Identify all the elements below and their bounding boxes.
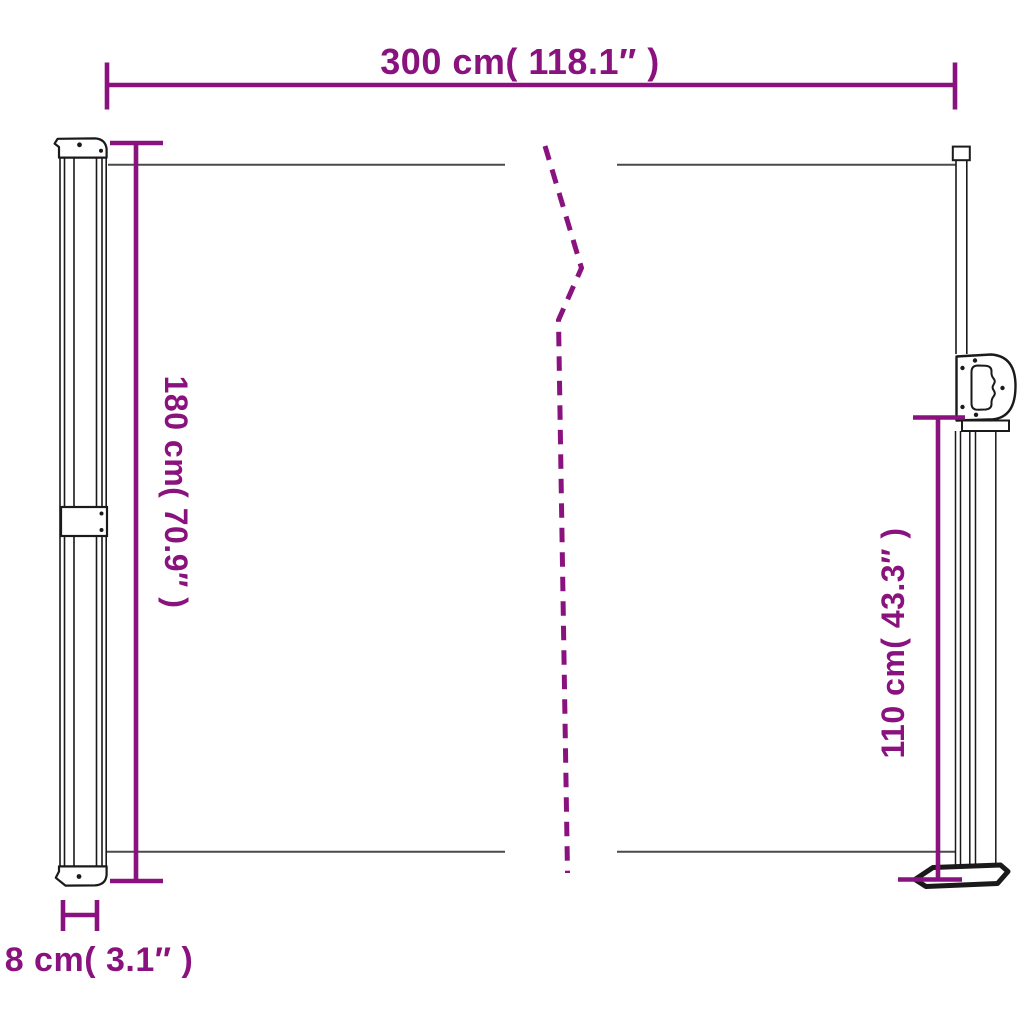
left-cassette-post	[55, 138, 107, 885]
top-cap-screw-dot-2	[99, 149, 103, 153]
width-dimension-label: 300 cm( 118.1″ )	[380, 41, 659, 82]
product-dimension-diagram: 300 cm( 118.1″ ) 180 cm( 70.9″ ) 110 cm(…	[0, 0, 1024, 1024]
pole-height-dimension: 110 cm( 43.3″ )	[875, 418, 965, 880]
height-dimension-label: 180 cm( 70.9″ )	[158, 376, 194, 609]
handle-screw-dot-1	[960, 366, 964, 370]
handle-screw-dot-3	[973, 358, 977, 362]
depth-dimension: 8 cm( 3.1″ )	[5, 900, 194, 979]
depth-dimension-line	[63, 900, 97, 931]
dimension-drawing-canvas: 300 cm( 118.1″ ) 180 cm( 70.9″ ) 110 cm(…	[0, 0, 1024, 1024]
pull-handle-grip-cutout	[972, 366, 995, 410]
break-line	[545, 146, 582, 873]
right-pole-lower-lines	[956, 431, 996, 866]
right-post-base-plate	[915, 865, 1008, 887]
left-post-top-cap	[55, 138, 107, 157]
handle-screw-dot-5	[974, 413, 978, 417]
height-dimension-line	[110, 143, 163, 881]
bracket-screw-dot-1	[100, 512, 104, 516]
width-dimension: 300 cm( 118.1″ )	[107, 41, 955, 110]
right-pull-post	[915, 147, 1016, 887]
bracket-screw-dot-2	[100, 528, 104, 532]
handle-screw-dot-2	[960, 405, 964, 409]
depth-dimension-label: 8 cm( 3.1″ )	[5, 941, 194, 979]
left-post-wall-bracket	[61, 507, 107, 536]
awning-panel-edge-lines	[107, 165, 956, 852]
right-pole-upper-lines	[956, 160, 967, 354]
handle-screw-dot-4	[1000, 386, 1004, 390]
height-dimension: 180 cm( 70.9″ )	[110, 143, 194, 881]
bottom-cap-screw-dot	[77, 874, 82, 879]
right-pole-top-cap	[953, 147, 970, 161]
pole-height-dimension-label: 110 cm( 43.3″ )	[875, 528, 911, 759]
top-cap-screw-dot-1	[77, 142, 82, 147]
awning-panel-edges	[107, 165, 956, 852]
handle-lower-flange	[962, 421, 1009, 432]
